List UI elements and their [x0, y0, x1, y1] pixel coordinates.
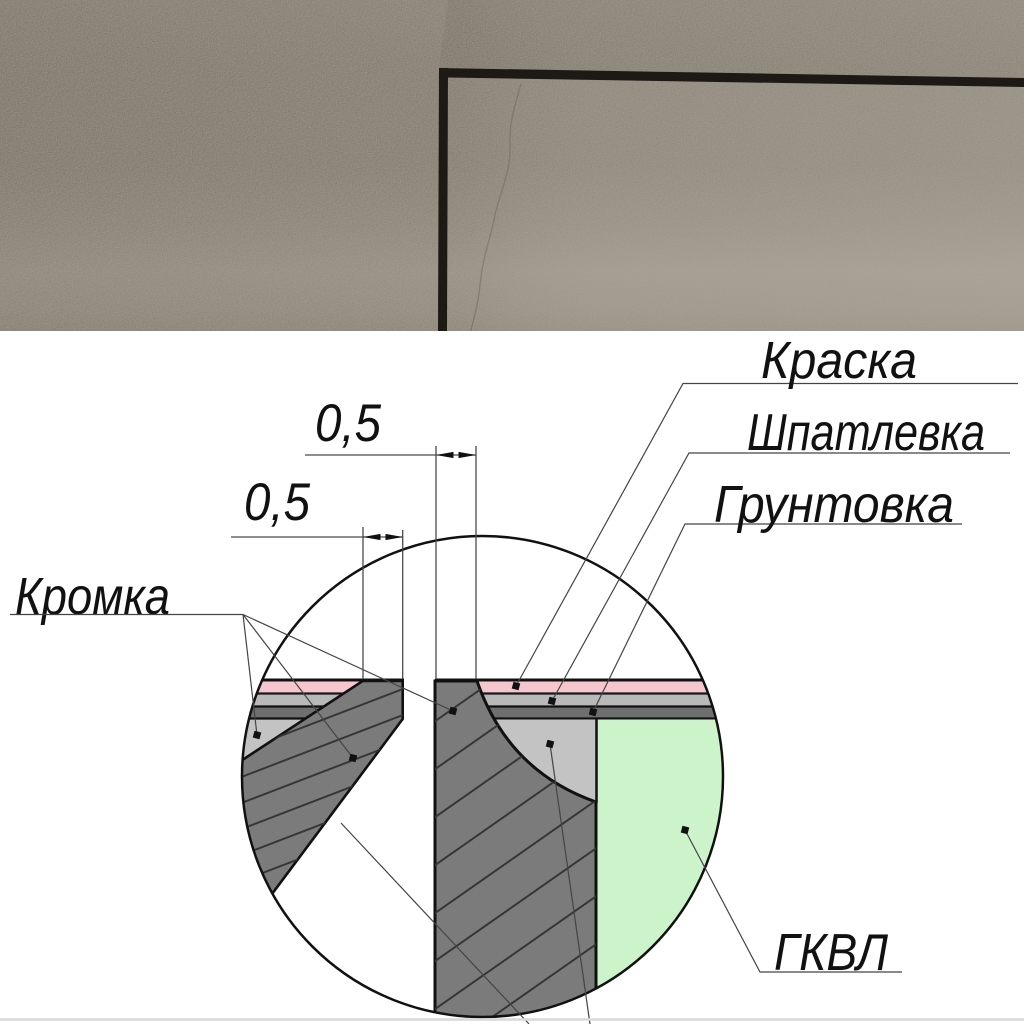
- svg-text:Шпатлевка: Шпатлевка: [747, 404, 985, 462]
- svg-text:ГКВЛ: ГКВЛ: [774, 924, 888, 982]
- svg-text:Краска: Краска: [761, 332, 917, 390]
- svg-text:Кромка: Кромка: [15, 568, 170, 626]
- svg-text:0,5: 0,5: [315, 394, 381, 453]
- svg-text:0,5: 0,5: [244, 473, 310, 532]
- svg-text:Грунтовка: Грунтовка: [714, 476, 954, 534]
